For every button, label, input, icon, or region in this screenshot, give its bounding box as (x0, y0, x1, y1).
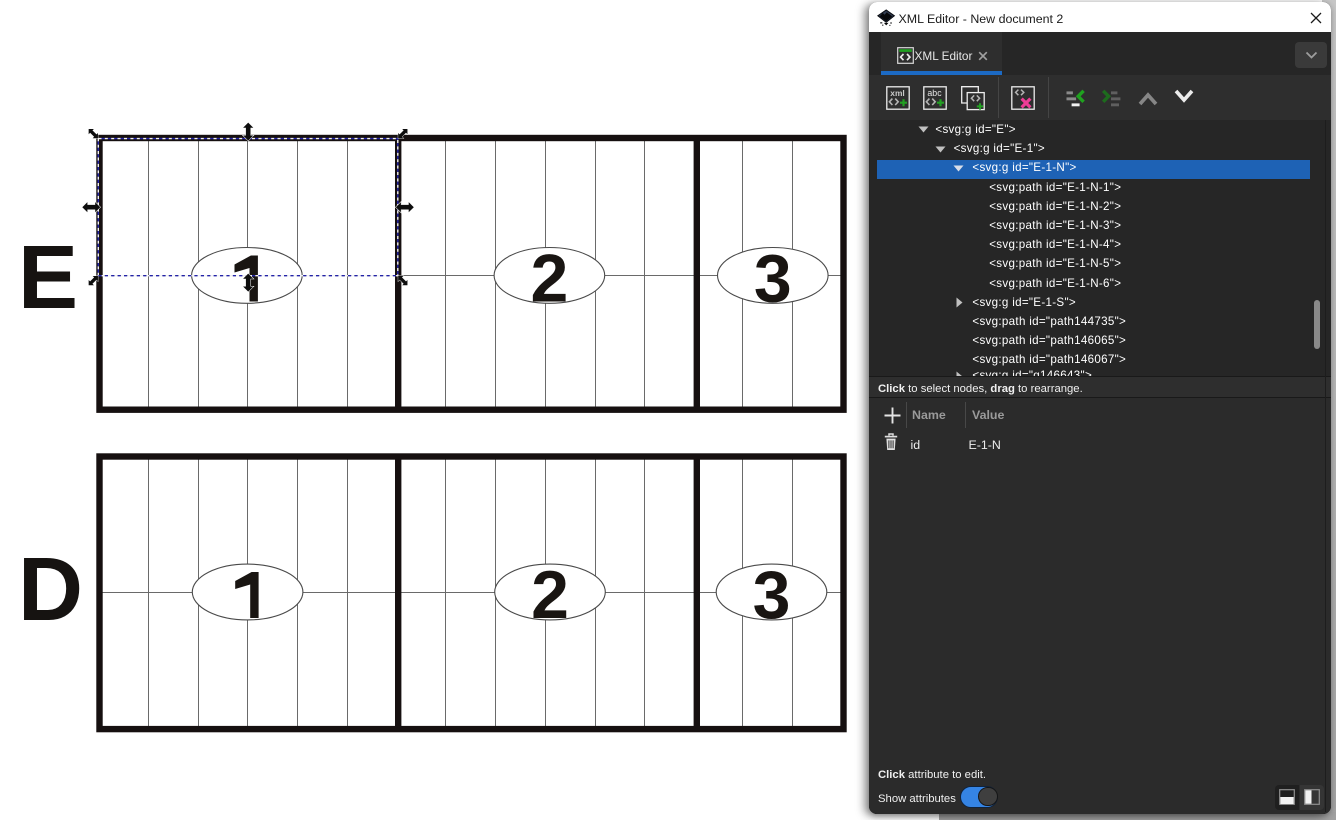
svg-text:E: E (18, 228, 78, 328)
svg-text:2: 2 (531, 557, 569, 633)
svg-text:2: 2 (530, 241, 568, 317)
svg-text:3: 3 (754, 241, 792, 317)
svg-text:abc: abc (927, 88, 942, 98)
svg-text:D: D (18, 540, 83, 640)
svg-text:3: 3 (753, 557, 791, 633)
svg-text:xml: xml (890, 88, 904, 98)
